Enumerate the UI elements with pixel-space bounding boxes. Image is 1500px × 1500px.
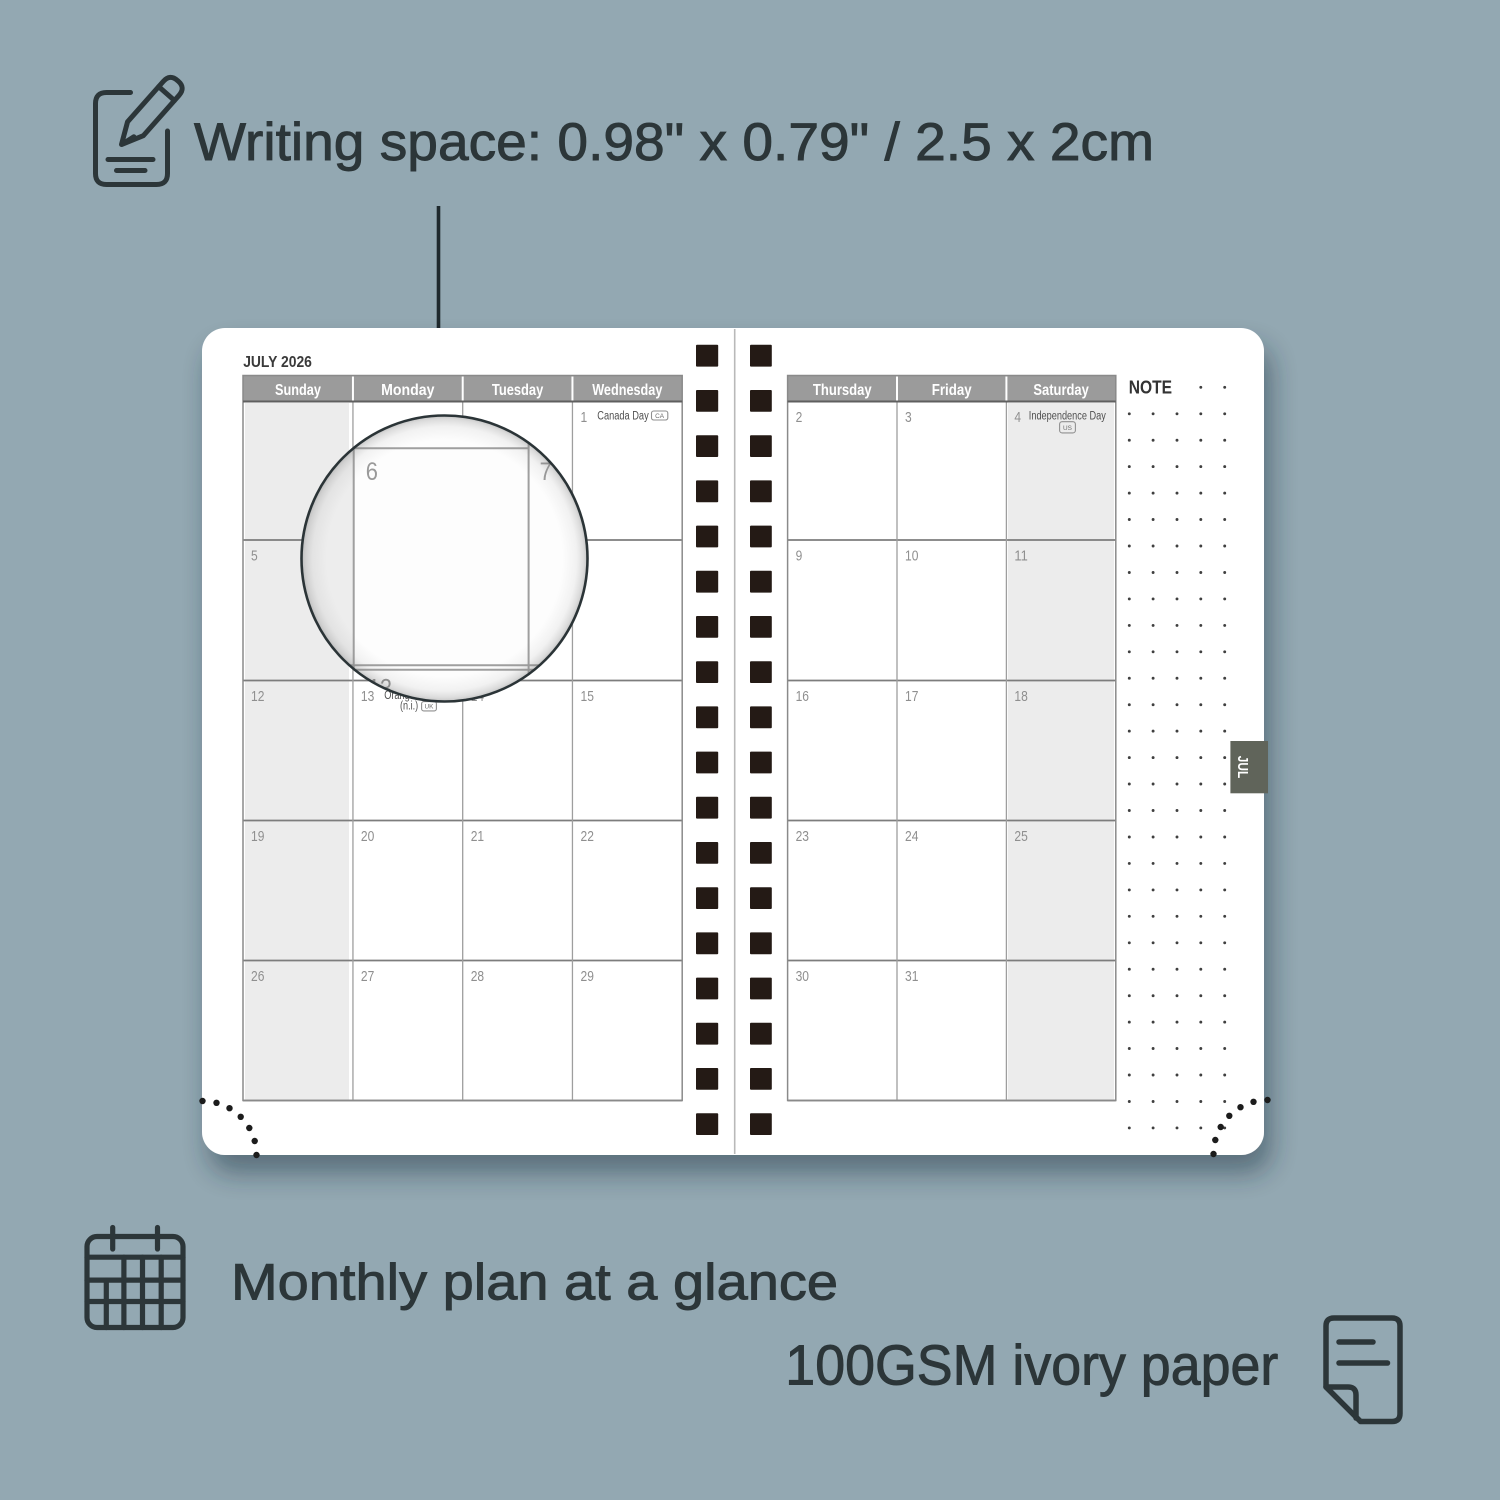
svg-text:13: 13 (361, 689, 374, 705)
svg-text:10: 10 (905, 549, 918, 565)
svg-text:JULY 2026: JULY 2026 (243, 354, 312, 371)
svg-text:15: 15 (581, 689, 594, 705)
svg-text:2: 2 (796, 410, 803, 426)
svg-text:31: 31 (905, 969, 918, 985)
svg-text:9: 9 (796, 549, 803, 565)
svg-text:20: 20 (361, 829, 374, 845)
svg-text:Tuesday: Tuesday (492, 382, 543, 399)
svg-text:16: 16 (796, 689, 809, 705)
svg-text:30: 30 (796, 969, 809, 985)
svg-text:US: US (1063, 425, 1072, 432)
svg-text:Independence Day: Independence Day (1029, 410, 1106, 422)
svg-text:22: 22 (581, 829, 594, 845)
svg-text:Sunday: Sunday (275, 382, 321, 399)
svg-text:27: 27 (361, 969, 374, 985)
svg-text:11: 11 (1014, 549, 1027, 565)
svg-text:NOTE: NOTE (1129, 377, 1172, 397)
svg-text:28: 28 (471, 969, 484, 985)
svg-text:23: 23 (796, 829, 809, 845)
svg-text:Writing space: 0.98" x 0.79" /: Writing space: 0.98" x 0.79" / 2.5 x 2cm (194, 113, 1154, 172)
svg-text:(n.i.): (n.i.) (400, 701, 418, 713)
svg-text:Monday: Monday (381, 382, 434, 399)
svg-text:25: 25 (1014, 829, 1027, 845)
svg-text:21: 21 (471, 829, 484, 845)
svg-text:17: 17 (905, 689, 918, 705)
svg-text:Canada Day: Canada Day (597, 411, 649, 423)
svg-text:CA: CA (655, 413, 665, 420)
svg-text:18: 18 (1014, 689, 1027, 705)
svg-text:4: 4 (1014, 410, 1021, 426)
svg-text:26: 26 (251, 969, 264, 985)
svg-text:JUL: JUL (1234, 756, 1250, 779)
svg-text:Friday: Friday (932, 382, 972, 399)
svg-text:UK: UK (425, 704, 435, 711)
svg-text:1: 1 (581, 410, 588, 426)
svg-text:Wednesday: Wednesday (592, 382, 662, 399)
svg-text:5: 5 (251, 549, 258, 565)
svg-text:29: 29 (581, 969, 594, 985)
svg-text:3: 3 (905, 410, 912, 426)
svg-text:Monthly plan at a glance: Monthly plan at a glance (231, 1254, 838, 1311)
svg-text:24: 24 (905, 829, 918, 845)
svg-text:19: 19 (251, 829, 264, 845)
svg-text:Saturday: Saturday (1033, 382, 1089, 399)
svg-text:100GSM ivory paper: 100GSM ivory paper (785, 1334, 1278, 1397)
svg-text:12: 12 (251, 689, 264, 705)
svg-text:Thursday: Thursday (813, 382, 872, 399)
